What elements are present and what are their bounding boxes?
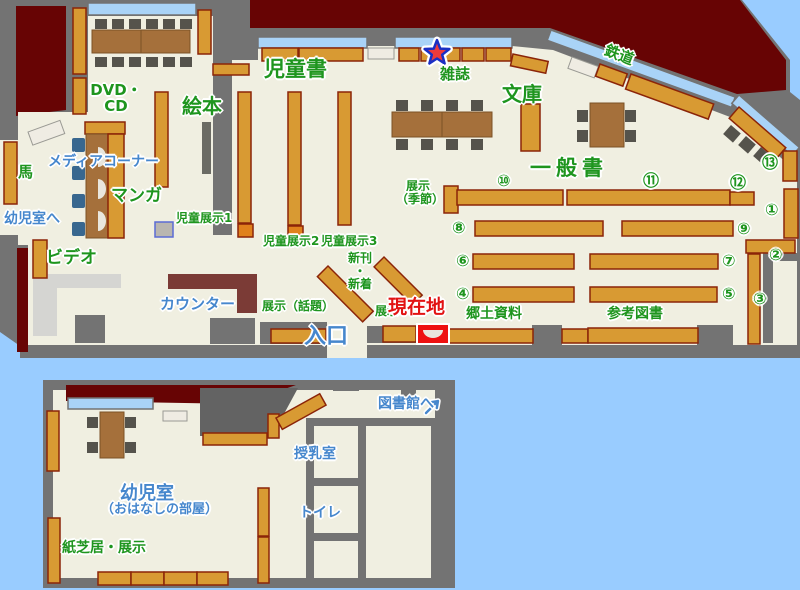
shelf xyxy=(462,48,484,61)
reading-table xyxy=(141,30,190,53)
window xyxy=(88,3,196,15)
shelf-zasshi xyxy=(399,48,419,61)
room-wall xyxy=(358,418,366,578)
label-shinkan-shinchaku: 新刊・新着 xyxy=(336,252,384,291)
window xyxy=(68,398,153,409)
shelf xyxy=(258,488,269,536)
label-toshokan-e: 図書館へ xyxy=(378,397,434,412)
library-floor-map: DVD・CD 絵本 児童書 雑誌 文庫 鉄道 馬 メディアコーナー マンガ 幼児… xyxy=(0,0,800,590)
shelf xyxy=(486,48,511,61)
shelf-9 xyxy=(622,221,733,236)
label-sankou: 参考図書 xyxy=(607,307,663,322)
shelf-7 xyxy=(590,254,718,269)
shelf-sankou xyxy=(588,328,698,343)
label-ohanashi: （おはなしの部屋） xyxy=(101,503,218,517)
label-toire: トイレ xyxy=(299,506,341,521)
shelf-8 xyxy=(475,221,603,236)
shelf xyxy=(47,411,59,471)
label-jidousho: 児童書 xyxy=(264,58,327,81)
label-number-3: ③ xyxy=(753,290,767,307)
window xyxy=(258,37,367,48)
shelf xyxy=(85,122,125,134)
label-genzaichi: 現在地 xyxy=(388,297,445,318)
shelf-kamishibai xyxy=(48,518,60,583)
shelf-5 xyxy=(590,287,717,302)
shelf-sankou xyxy=(562,329,588,343)
shelf xyxy=(203,433,267,445)
shelf-11 xyxy=(567,190,730,205)
display-rod xyxy=(202,122,211,174)
pillar xyxy=(532,325,562,345)
reading-table xyxy=(92,30,141,53)
label-tenji-kisetsu: 展示（季節） xyxy=(396,180,440,206)
label-number-13: ⑬ xyxy=(762,154,778,171)
shelf-tenji xyxy=(383,326,416,342)
shelf xyxy=(238,92,251,223)
label-tenji-wadai: 展示（話題） xyxy=(262,300,334,313)
wall-segment xyxy=(333,383,359,391)
shelf-ehon xyxy=(155,92,168,187)
pillar xyxy=(210,318,255,344)
label-number-4: ④ xyxy=(456,285,470,302)
shelf-video xyxy=(33,240,47,278)
shelf-bunko xyxy=(521,104,540,151)
shelf xyxy=(73,8,86,74)
label-number-6: ⑥ xyxy=(456,252,470,269)
label-number-5: ⑤ xyxy=(722,285,736,302)
shelf xyxy=(131,572,164,585)
label-jido-tenji-1: 児童展示1 xyxy=(176,212,232,225)
room-wall xyxy=(306,418,440,426)
label-number-10: ⑩ xyxy=(497,172,511,189)
reading-table xyxy=(590,103,624,147)
shelf xyxy=(164,572,197,585)
reading-table xyxy=(100,412,124,458)
shelf-12 xyxy=(730,192,754,205)
room-wall xyxy=(306,418,314,578)
label-media-corner: メディアコーナー xyxy=(48,155,159,170)
shelf-10 xyxy=(457,190,563,205)
shelf-1 xyxy=(784,189,798,238)
label-manga: マンガ xyxy=(111,187,162,205)
label-number-12: ⑫ xyxy=(730,174,746,191)
label-number-1: ① xyxy=(765,201,779,218)
shelf-6 xyxy=(473,254,574,269)
label-zasshi: 雑誌 xyxy=(440,66,470,82)
shelf xyxy=(338,92,351,225)
floor-children-area xyxy=(232,60,512,245)
label-dvd-cd: DVD・CD xyxy=(86,82,146,114)
media-chair xyxy=(72,222,85,236)
label-ippan: 一般書 xyxy=(530,157,608,180)
shelf xyxy=(288,92,301,225)
label-number-11: ⑪ xyxy=(643,172,659,189)
label-yojishitsu: 幼児室 xyxy=(120,484,174,503)
shelf xyxy=(98,572,131,585)
exterior-area xyxy=(16,6,66,116)
display-stand xyxy=(163,411,187,421)
shelf xyxy=(198,10,211,54)
reading-table xyxy=(442,112,492,137)
media-chair xyxy=(72,138,85,152)
display-stand xyxy=(368,48,394,59)
label-ehon: 絵本 xyxy=(182,96,222,118)
label-number-7: ⑦ xyxy=(722,252,736,269)
pillar xyxy=(75,315,105,343)
label-iriguchi: 入口 xyxy=(304,325,348,349)
shelf xyxy=(258,537,269,583)
label-jido-tenji-3: 児童展示3 xyxy=(321,235,377,248)
label-kyodo: 郷土資料 xyxy=(466,307,522,322)
shelf xyxy=(73,78,86,114)
label-junyushitsu: 授乳室 xyxy=(294,447,336,462)
label-number-8: ⑧ xyxy=(452,219,466,236)
room-wall xyxy=(306,478,366,486)
label-number-9: ⑨ xyxy=(737,220,751,237)
window xyxy=(395,37,512,48)
shelf-kisetsu xyxy=(444,186,458,213)
room-wall xyxy=(306,533,366,541)
label-bunko: 文庫 xyxy=(502,84,542,106)
label-video: ビデオ xyxy=(46,249,97,267)
shelf-kyodo xyxy=(448,329,533,343)
shelf-uma xyxy=(4,142,17,204)
label-number-2: ② xyxy=(769,246,783,263)
label-yojishitsu-e: 幼児室へ xyxy=(4,212,60,227)
shelf-4 xyxy=(473,287,574,302)
label-uma: 馬 xyxy=(18,164,33,180)
label-jido-tenji-2: 児童展示2 xyxy=(263,235,319,248)
label-kamishibai: 紙芝居・展示 xyxy=(62,541,146,556)
shelf-13 xyxy=(783,151,797,181)
exterior-area xyxy=(17,248,28,352)
children-display-2 xyxy=(238,224,253,237)
room-wall xyxy=(431,418,439,578)
label-counter: カウンター xyxy=(160,296,235,312)
shelf xyxy=(197,572,228,585)
media-chair xyxy=(72,194,85,208)
children-display-1 xyxy=(155,222,173,237)
pillar xyxy=(697,325,733,345)
reading-table xyxy=(392,112,442,137)
shelf xyxy=(213,64,249,75)
